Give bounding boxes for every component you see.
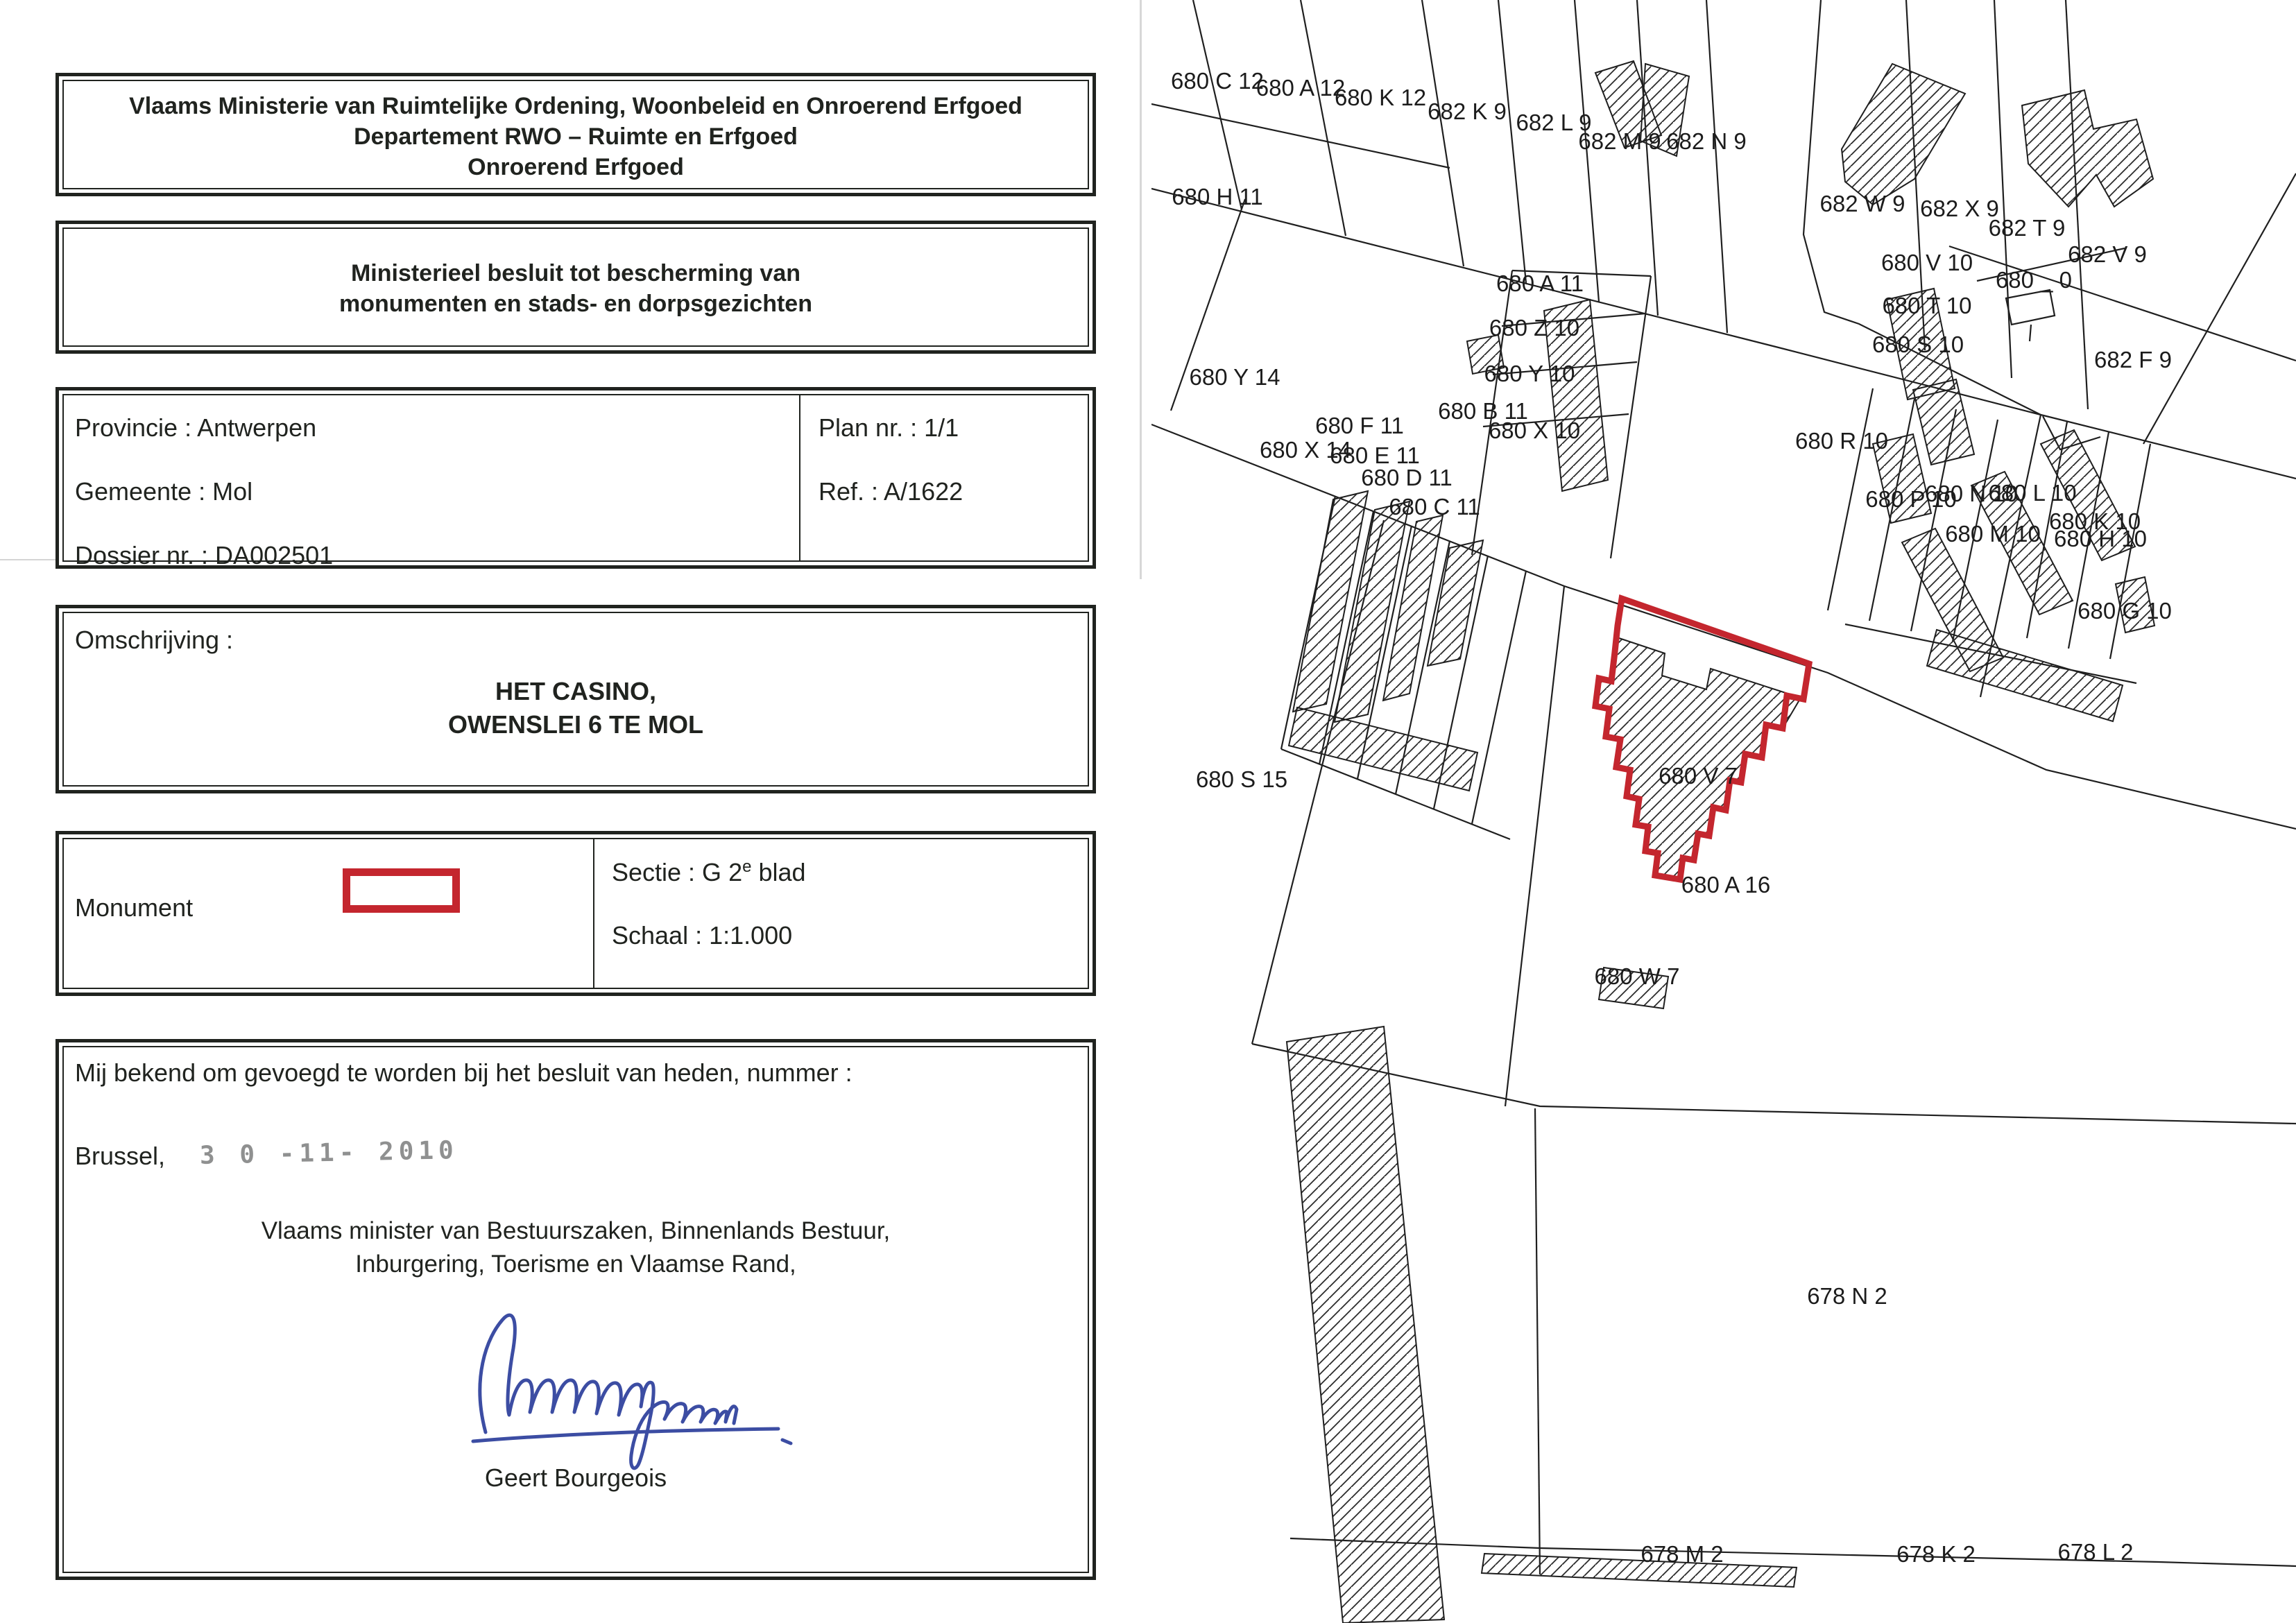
description-name-line1: HET CASINO, bbox=[64, 677, 1088, 706]
parcel-label: 680 A 11 bbox=[1496, 270, 1584, 296]
info-box: Provincie : Antwerpen Gemeente : Mol Dos… bbox=[55, 387, 1096, 569]
tick bbox=[2030, 325, 2031, 341]
parcel-label: 682 N 9 bbox=[1666, 128, 1747, 154]
description-name-line2: OWENSLEI 6 TE MOL bbox=[64, 710, 1088, 739]
divider bbox=[1498, 0, 1526, 283]
description-box: Omschrijving : HET CASINO, OWENSLEI 6 TE… bbox=[55, 605, 1096, 793]
parcel-label: 682 K 9 bbox=[1428, 98, 1507, 124]
ministry-header-frame: Vlaams Ministerie van Ruimtelijke Ordeni… bbox=[62, 80, 1089, 189]
section-prefix: Sectie : G 2 bbox=[612, 858, 742, 886]
parcel-label: 678 M 2 bbox=[1640, 1541, 1723, 1567]
building bbox=[2022, 90, 2153, 207]
province-field: Provincie : Antwerpen bbox=[75, 413, 316, 443]
divider bbox=[1422, 0, 1464, 266]
scan-fold-line bbox=[1140, 0, 1142, 579]
parcel-label: 680 Y 14 bbox=[1190, 364, 1280, 390]
agency-name: Onroerend Erfgoed bbox=[64, 152, 1088, 183]
scan-edge-mark bbox=[0, 559, 55, 560]
legend-box: Monument Sectie : G 2e blad Schaal : 1:1… bbox=[55, 831, 1096, 996]
parcel-label: 682 W 9 bbox=[1820, 191, 1905, 216]
parcel-label: 680 V 10 bbox=[1881, 250, 1973, 275]
building-strip-southwest bbox=[1287, 1027, 1444, 1623]
parcel-label: 678 L 2 bbox=[2058, 1539, 2134, 1565]
parcel-label: 680 Y 10 bbox=[1484, 361, 1575, 386]
building bbox=[1289, 707, 1477, 791]
date-stamp: 3 0 -11- 2010 bbox=[200, 1136, 459, 1170]
known-line: Mij bekend om gevoegd te worden bij het … bbox=[75, 1058, 853, 1088]
fan-line bbox=[1472, 571, 1526, 824]
monument-legend-swatch bbox=[343, 868, 460, 913]
parcel-label: 680 D 11 bbox=[1361, 465, 1452, 490]
minister-title-line1: Vlaams minister van Bestuurszaken, Binne… bbox=[64, 1215, 1088, 1247]
building bbox=[1913, 379, 1974, 465]
parcel-label: 678 N 2 bbox=[1807, 1283, 1887, 1309]
scanned-decree-page: { "document": { "header": { "line1": "Vl… bbox=[0, 0, 2296, 1623]
reference-field: Ref. : A/1622 bbox=[819, 477, 963, 506]
parcel-label: 680 C 11 bbox=[1389, 494, 1480, 519]
parcel-label: 680 T 10 bbox=[1882, 293, 1971, 318]
department-name: Departement RWO – Ruimte en Erfgoed bbox=[64, 121, 1088, 153]
parcel-label: 680 W 7 bbox=[1595, 963, 1680, 989]
signature bbox=[473, 1315, 791, 1468]
closing-box: Mij bekend om gevoegd te worden bij het … bbox=[55, 1039, 1096, 1580]
parcel-label: 680 F 11 bbox=[1315, 413, 1404, 438]
parcel-678-west-boundary bbox=[1535, 1108, 1540, 1574]
parcel-label: 680 A 12 bbox=[1256, 75, 1345, 101]
monument-west-boundary bbox=[1505, 586, 1564, 1106]
ministry-name: Vlaams Ministerie van Ruimtelijke Ordeni… bbox=[64, 91, 1088, 122]
divider bbox=[1301, 0, 1346, 236]
section-field: Sectie : G 2e blad bbox=[612, 857, 806, 887]
monument-label: Monument bbox=[75, 893, 193, 922]
ministry-header-box: Vlaams Ministerie van Ruimtelijke Ordeni… bbox=[55, 73, 1096, 196]
parcel-label: 680 A 16 bbox=[1681, 872, 1770, 898]
info-divider bbox=[799, 395, 800, 560]
cadastral-map: 680 C 12680 A 12680 K 12682 K 9682 L 968… bbox=[1151, 0, 2296, 1623]
parcel-label: 682 F 9 bbox=[2094, 347, 2172, 372]
parcel-label: 680 K 12 bbox=[1335, 85, 1426, 110]
parcel-label: 680 _ 0 bbox=[1996, 267, 2072, 293]
minister-title-line2: Inburgering, Toerisme en Vlaamse Rand, bbox=[64, 1248, 1088, 1280]
parcel-label: 680 H 11 bbox=[1172, 184, 1262, 209]
municipality-field: Gemeente : Mol bbox=[75, 477, 252, 506]
scale-field: Schaal : 1:1.000 bbox=[612, 921, 792, 950]
building bbox=[1927, 630, 2123, 721]
parcel-label: 680 S 15 bbox=[1196, 766, 1287, 792]
decree-title-box: Ministerieel besluit tot bescherming van… bbox=[55, 221, 1096, 354]
parcel-label: 680 V 7 bbox=[1659, 763, 1738, 789]
signature-canvas bbox=[64, 1297, 1095, 1477]
parcel-label: 680 C 12 bbox=[1171, 68, 1264, 94]
parcel-label: 680 G 10 bbox=[2077, 598, 2172, 624]
place-label: Brussel, bbox=[75, 1142, 165, 1171]
divider-682V9-F9 bbox=[2143, 173, 2296, 444]
parcel-label: 682 T 9 bbox=[1989, 215, 2066, 241]
description-label: Omschrijving : bbox=[75, 626, 233, 655]
parcel-label: 680 H 10 bbox=[2054, 526, 2147, 551]
bottom-strip-line bbox=[1290, 1538, 2296, 1566]
parcel-label: 680 L 10 bbox=[1988, 480, 2076, 506]
closing-frame: Mij bekend om gevoegd te worden bij het … bbox=[62, 1046, 1089, 1573]
parcel-label: 682 V 9 bbox=[2068, 241, 2147, 267]
description-frame: Omschrijving : HET CASINO, OWENSLEI 6 TE… bbox=[62, 612, 1089, 787]
parcel-label: 680 R 10 bbox=[1795, 428, 1888, 454]
south-block-boundary bbox=[1252, 1044, 2296, 1124]
parcel-label: 680 M 10 bbox=[1945, 521, 2041, 547]
signatory-name: Geert Bourgeois bbox=[64, 1463, 1088, 1493]
dossier-field: Dossier nr. : DA002501 bbox=[75, 541, 333, 570]
divider bbox=[1994, 0, 2012, 378]
parcel-label: 680 S 10 bbox=[1872, 332, 1964, 357]
parcel-label: 678 K 2 bbox=[1896, 1541, 1976, 1567]
parcel-label: 682 M 9 bbox=[1578, 128, 1661, 154]
legend-frame: Monument Sectie : G 2e blad Schaal : 1:1… bbox=[62, 838, 1089, 989]
small-parcel-680-0 bbox=[2006, 290, 2055, 325]
plan-number-field: Plan nr. : 1/1 bbox=[819, 413, 959, 443]
legend-divider bbox=[593, 839, 594, 988]
parcel-label: 682 X 9 bbox=[1920, 196, 1999, 221]
decree-title-line2: monumenten en stads- en dorpsgezichten bbox=[64, 289, 1088, 320]
column-right bbox=[1611, 276, 1651, 558]
divider bbox=[1637, 0, 1658, 316]
section-sup: e bbox=[742, 857, 751, 876]
divider bbox=[1706, 0, 1727, 333]
building bbox=[1842, 64, 1965, 205]
parcel-label: 680 B 11 bbox=[1438, 398, 1528, 424]
boundary-top-sliver bbox=[1151, 104, 1450, 168]
parcel-label: 680 Z 10 bbox=[1489, 315, 1579, 341]
building-strip-south bbox=[1482, 1554, 1797, 1587]
divider bbox=[1193, 0, 1242, 209]
decree-title-line1: Ministerieel besluit tot bescherming van bbox=[64, 258, 1088, 289]
decree-title-frame: Ministerieel besluit tot bescherming van… bbox=[62, 227, 1089, 347]
info-frame: Provincie : Antwerpen Gemeente : Mol Dos… bbox=[62, 394, 1089, 562]
section-suffix: blad bbox=[751, 858, 805, 886]
